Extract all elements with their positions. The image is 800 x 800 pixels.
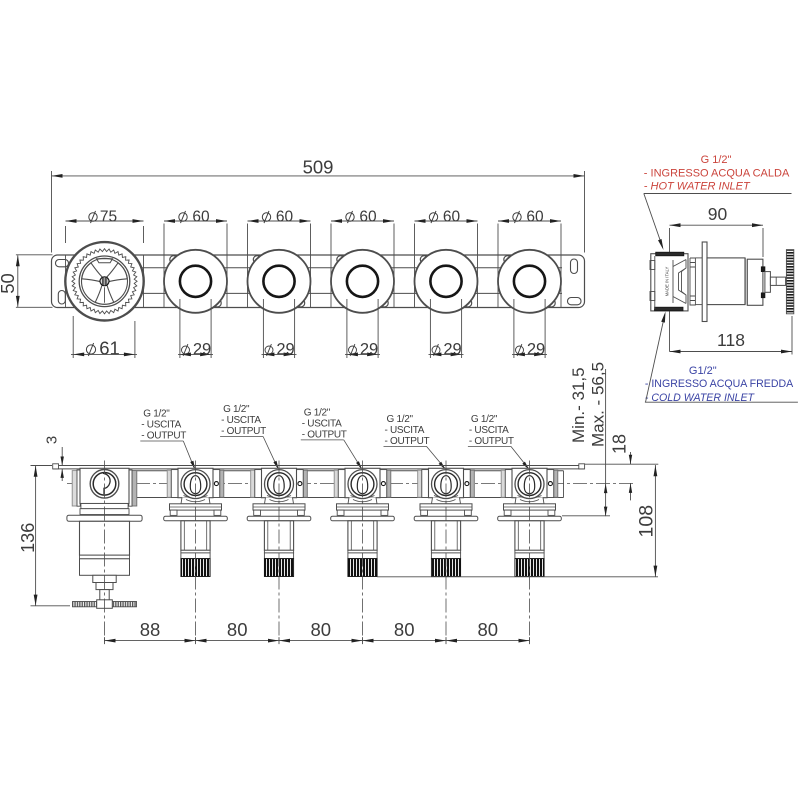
svg-text:- USCITA: - USCITA (469, 425, 509, 436)
svg-text:136: 136 (18, 523, 38, 553)
svg-text:- OUTPUT: - OUTPUT (302, 429, 347, 440)
svg-text:80: 80 (394, 619, 415, 640)
svg-text:- OUTPUT: - OUTPUT (385, 436, 430, 447)
svg-text:80: 80 (227, 619, 248, 640)
svg-text:- OUTPUT: - OUTPUT (469, 436, 514, 447)
svg-text:60: 60 (276, 209, 294, 226)
svg-text:108: 108 (636, 505, 658, 538)
svg-text:Max. - 56,5: Max. - 56,5 (589, 362, 608, 447)
svg-text:29: 29 (193, 341, 211, 359)
svg-text:60: 60 (359, 209, 377, 226)
svg-text:G 1/2": G 1/2" (471, 414, 498, 425)
svg-text:60: 60 (443, 209, 461, 226)
svg-text:- OUTPUT: - OUTPUT (221, 426, 266, 437)
svg-text:- OUTPUT: - OUTPUT (141, 430, 186, 441)
svg-text:- INGRESSO ACQUA FREDDA: - INGRESSO ACQUA FREDDA (645, 378, 794, 390)
svg-text:80: 80 (478, 619, 499, 640)
svg-text:MADE IN ITALY: MADE IN ITALY (665, 266, 670, 296)
svg-text:- USCITA: - USCITA (302, 418, 342, 429)
svg-text:G 1/2": G 1/2" (143, 408, 170, 419)
svg-text:60: 60 (526, 209, 544, 226)
svg-text:88: 88 (140, 619, 161, 640)
svg-text:29: 29 (360, 341, 378, 359)
svg-text:G 1/2": G 1/2" (304, 407, 331, 418)
svg-text:18: 18 (610, 434, 630, 454)
svg-text:3: 3 (44, 436, 61, 444)
svg-text:- HOT WATER INLET: - HOT WATER INLET (644, 181, 751, 193)
svg-text:G 1/2": G 1/2" (387, 414, 414, 425)
svg-text:509: 509 (303, 157, 334, 178)
svg-text:80: 80 (311, 619, 332, 640)
svg-text:75: 75 (100, 209, 117, 226)
svg-text:29: 29 (443, 341, 461, 359)
svg-text:G 1/2": G 1/2" (223, 404, 250, 415)
svg-text:- INGRESSO ACQUA CALDA: - INGRESSO ACQUA CALDA (644, 168, 790, 180)
svg-text:61: 61 (99, 338, 120, 359)
svg-text:- USCITA: - USCITA (385, 425, 425, 436)
svg-text:90: 90 (708, 204, 728, 224)
svg-text:29: 29 (276, 341, 294, 359)
svg-text:Min.- 31,5: Min.- 31,5 (569, 367, 588, 443)
svg-text:29: 29 (527, 341, 545, 359)
svg-text:- USCITA: - USCITA (221, 415, 261, 426)
svg-text:60: 60 (192, 209, 210, 226)
svg-text:50: 50 (0, 273, 18, 294)
svg-text:G 1/2": G 1/2" (701, 154, 732, 166)
svg-text:G1/2": G1/2" (689, 365, 717, 377)
svg-text:- USCITA: - USCITA (141, 419, 181, 430)
svg-text:118: 118 (717, 330, 745, 350)
